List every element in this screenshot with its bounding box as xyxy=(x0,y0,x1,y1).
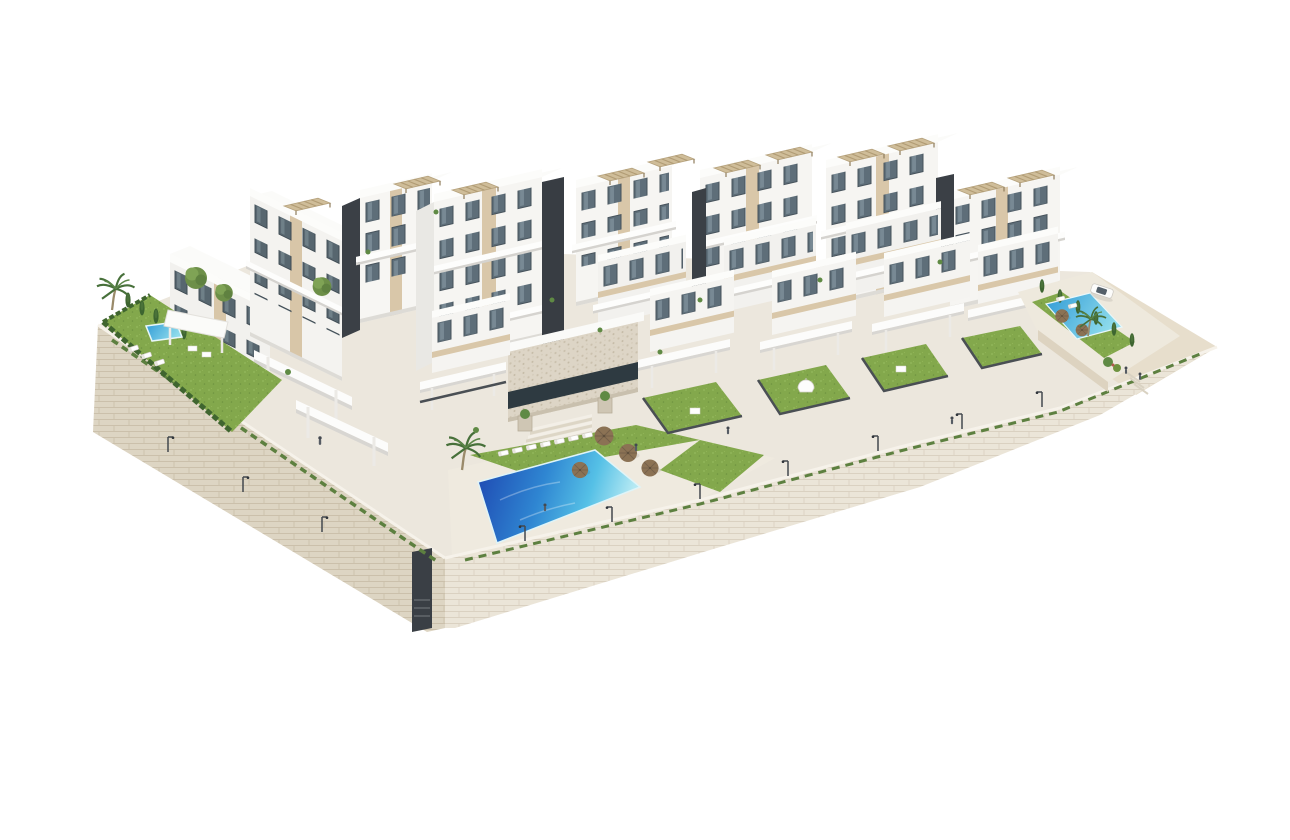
wall-stairwell xyxy=(412,548,432,632)
architectural-render xyxy=(0,0,1290,840)
person xyxy=(1125,367,1128,374)
person xyxy=(543,503,546,511)
side-shade-face xyxy=(416,202,434,371)
dark-core xyxy=(342,198,360,338)
render-canvas xyxy=(0,0,1290,840)
person xyxy=(1139,373,1142,380)
